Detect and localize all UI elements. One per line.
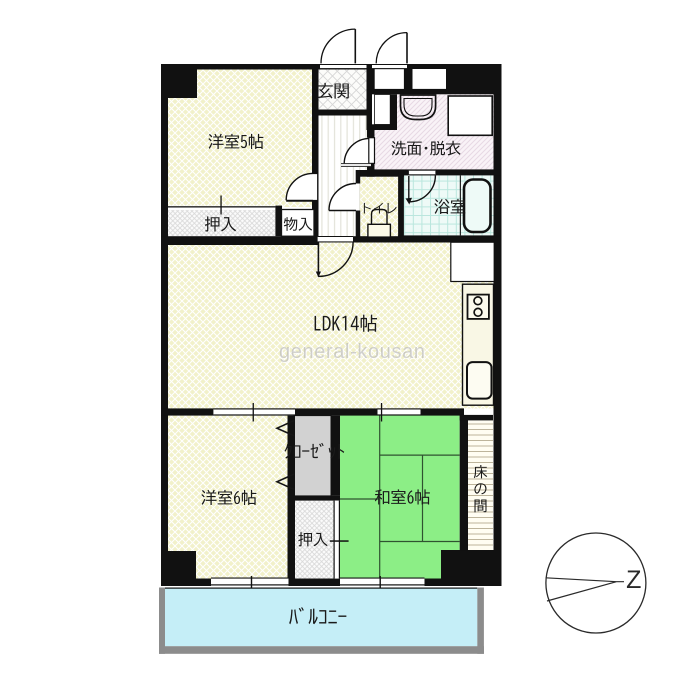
svg-text:general-kousan: general-kousan	[279, 341, 425, 363]
svg-text:Z: Z	[626, 566, 641, 594]
